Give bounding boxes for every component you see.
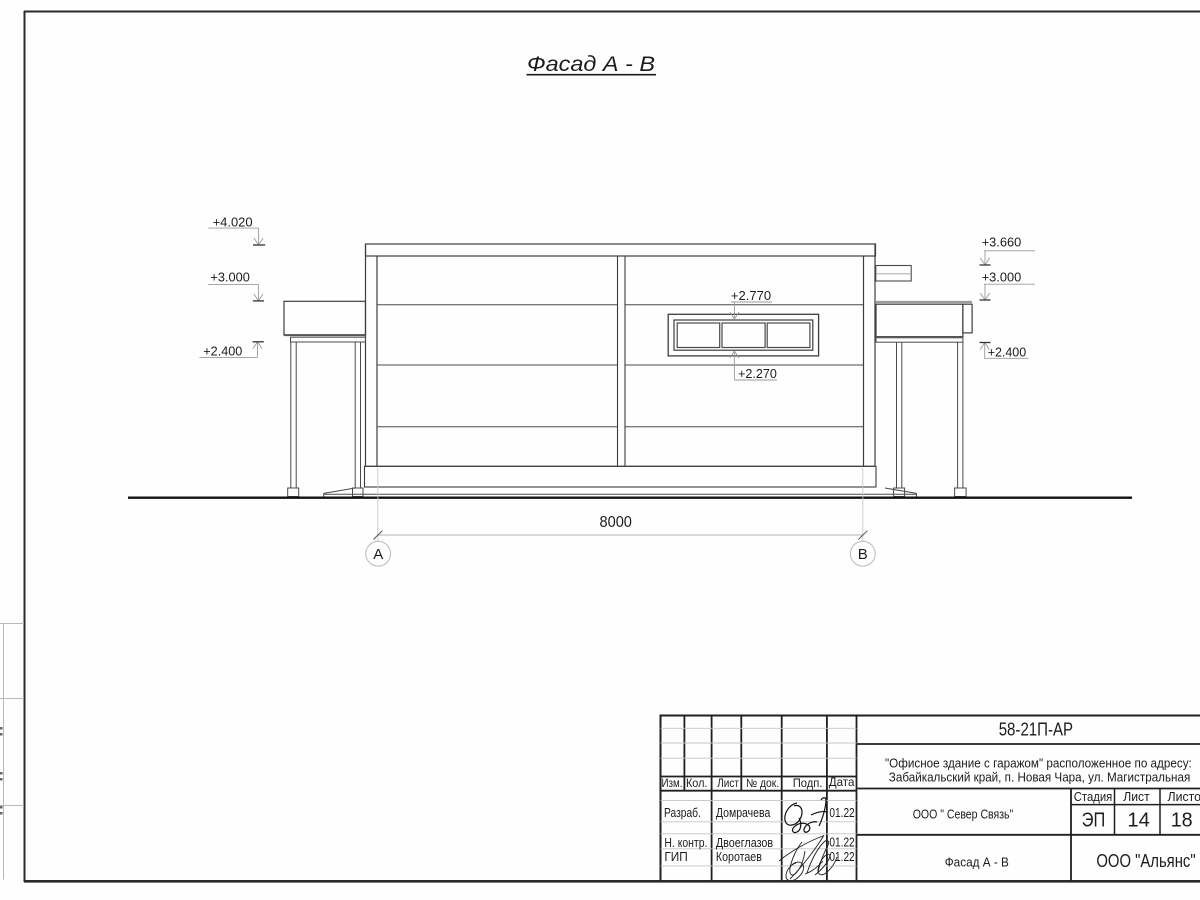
svg-text:Подп.: Подп.: [793, 776, 823, 790]
svg-text:+3.000: +3.000: [982, 270, 1022, 285]
svg-text:01.22: 01.22: [829, 805, 854, 820]
svg-text:+2.270: +2.270: [738, 366, 777, 381]
svg-text:Разраб.: Разраб.: [664, 805, 701, 820]
svg-text:Домрачева: Домрачева: [716, 805, 771, 820]
svg-text:Забайкальский край, п. Новая Ч: Забайкальский край, п. Новая Чара, ул. М…: [889, 769, 1191, 784]
svg-text:Дата: Дата: [829, 775, 855, 789]
svg-text:+2.400: +2.400: [203, 343, 242, 358]
svg-text:Стадия: Стадия: [1074, 790, 1113, 804]
svg-text:№ док.: № док.: [746, 776, 779, 790]
svg-text:+4.020: +4.020: [213, 214, 253, 229]
svg-text:Лист: Лист: [1123, 790, 1150, 804]
svg-text:+3.660: +3.660: [982, 235, 1022, 250]
svg-text:14: 14: [1127, 810, 1150, 832]
svg-text:8000: 8000: [600, 514, 633, 531]
svg-text:58-21П-АР: 58-21П-АР: [999, 720, 1073, 740]
svg-text:18: 18: [1171, 810, 1193, 832]
svg-text:ООО " Север Связь": ООО " Север Связь": [913, 807, 1014, 822]
svg-text:+2.770: +2.770: [731, 288, 771, 303]
svg-text:Изм.: Изм.: [662, 776, 683, 790]
svg-text:Коротаев: Коротаев: [716, 849, 762, 864]
svg-text:ООО "Альянс": ООО "Альянс": [1096, 851, 1195, 871]
svg-text:Фасад А - В: Фасад А - В: [945, 855, 1009, 870]
svg-text:ЭП: ЭП: [1082, 810, 1106, 832]
svg-text:Фасад А - В: Фасад А - В: [527, 52, 655, 76]
svg-text:Двоеглазов: Двоеглазов: [716, 835, 773, 850]
svg-text:Кол.: Кол.: [686, 776, 708, 790]
svg-text:01.22: 01.22: [829, 849, 854, 864]
svg-text:В: В: [858, 546, 868, 563]
svg-text:Листов: Листов: [1168, 790, 1200, 804]
svg-text:ГИП: ГИП: [664, 849, 687, 864]
svg-text:+2.400: +2.400: [988, 345, 1026, 360]
svg-text:А: А: [373, 546, 383, 563]
svg-text:Н. контр.: Н. контр.: [664, 835, 707, 850]
svg-text:+3.000: +3.000: [210, 269, 250, 284]
svg-text:01.22: 01.22: [829, 835, 854, 850]
svg-text:Лист: Лист: [717, 776, 739, 790]
